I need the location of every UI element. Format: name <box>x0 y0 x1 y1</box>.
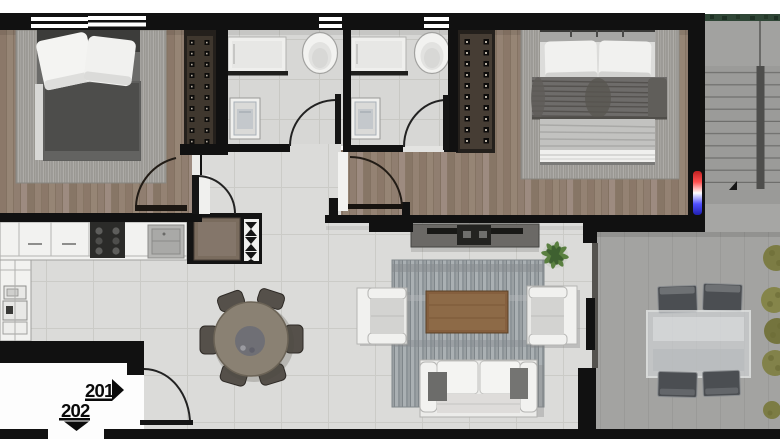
svg-text:201: 201 <box>85 380 114 401</box>
svg-text:202: 202 <box>61 400 90 421</box>
